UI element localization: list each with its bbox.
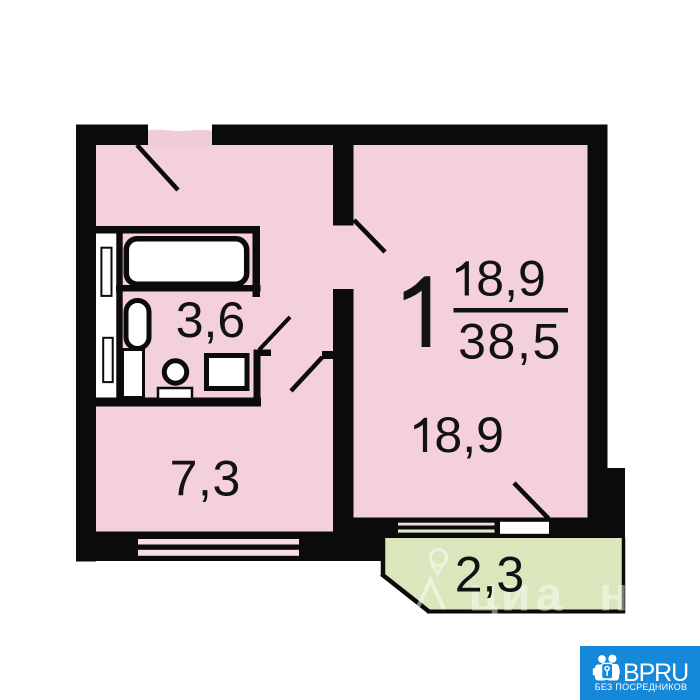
svg-text:8,9: 8,9 [434, 407, 504, 463]
svg-text:а: а [536, 569, 563, 622]
svg-text:7,3: 7,3 [170, 451, 241, 507]
svg-text:38,5: 38,5 [458, 314, 562, 370]
svg-text:БЕЗ ПОСРЕДНИКОВ: БЕЗ ПОСРЕДНИКОВ [595, 682, 688, 692]
svg-text:2,3: 2,3 [455, 547, 525, 603]
svg-text:8,9: 8,9 [476, 251, 546, 307]
svg-text:3,6: 3,6 [176, 292, 246, 348]
svg-text:н: н [599, 569, 628, 622]
